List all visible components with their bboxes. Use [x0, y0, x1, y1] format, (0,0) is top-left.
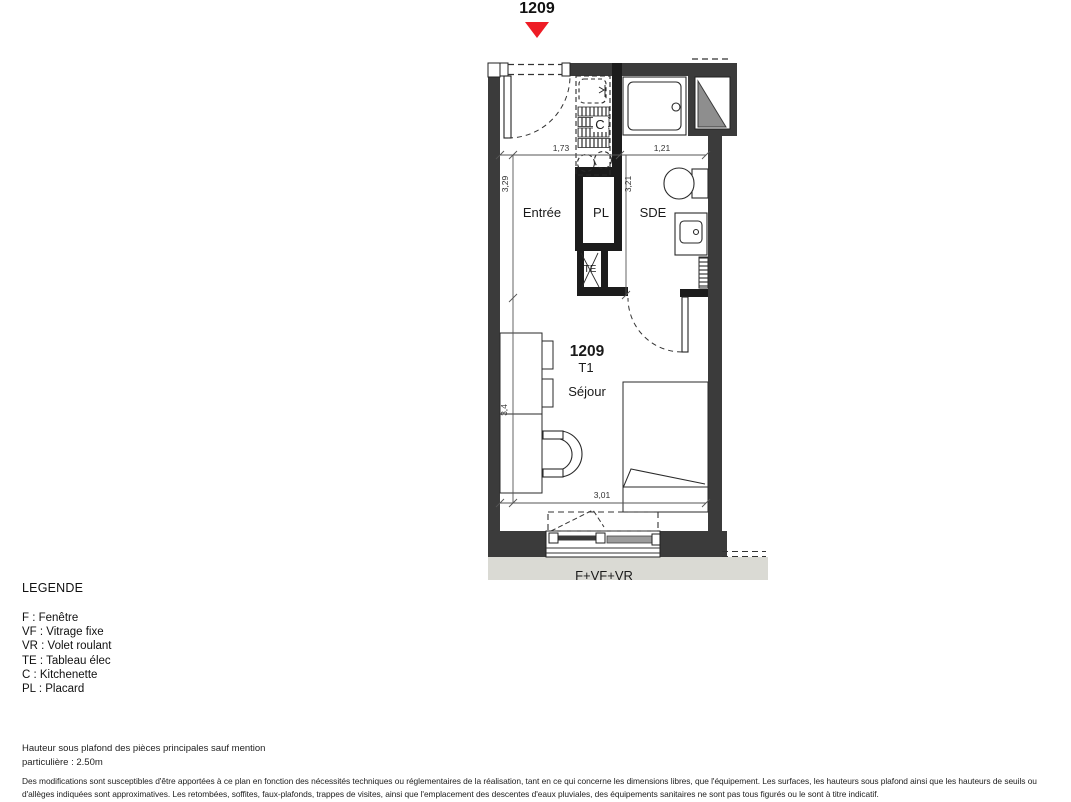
dim-width-entree: 1,73	[553, 143, 570, 153]
room-label-sde: SDE	[640, 205, 667, 220]
te-label: TE	[584, 264, 597, 275]
hob-burner-icon	[595, 152, 612, 169]
legend-item-fenetre: F : Fenêtre	[22, 611, 112, 625]
ceiling-height-note: Hauteur sous plafond des pièces principa…	[22, 742, 265, 769]
floor-plan-drawing: C TE	[0, 0, 1071, 800]
shower-tray	[623, 77, 686, 135]
legend-item-tableau-elec: TE : Tableau élec	[22, 654, 112, 668]
dim-width-sde: 1,21	[654, 143, 671, 153]
kitchenette-label: C	[595, 117, 604, 132]
sejour-door	[628, 297, 688, 352]
legend-title: LEGENDE	[22, 581, 112, 595]
dim-depth-entree: 3,29	[500, 175, 510, 192]
dim-depth-sejour: 3,4	[499, 404, 509, 416]
roller-shutter-box	[548, 512, 658, 531]
washbasin-icon	[675, 213, 707, 255]
legend-item-volet-roulant: VR : Volet roulant	[22, 639, 112, 653]
floor-plan-page: { "header": { "unit_number": "1209" }, "…	[0, 0, 1071, 800]
radiator-icon	[699, 257, 708, 288]
room-label-entree: Entrée	[523, 205, 561, 220]
wardrobe	[500, 333, 553, 414]
entry-opening	[488, 63, 570, 77]
ceiling-note-line2: particulière : 2.50m	[22, 756, 265, 770]
window-swing-symbol	[551, 510, 604, 531]
bed-icon	[623, 382, 708, 512]
disclaimer: Des modifications sont susceptibles d'êt…	[22, 775, 1037, 802]
chair-icon	[543, 431, 582, 477]
legend: LEGENDE F : Fenêtre VF : Vitrage fixe VR…	[22, 581, 112, 696]
window-assembly	[546, 510, 766, 557]
ceiling-note-line1: Hauteur sous plafond des pièces principa…	[22, 742, 265, 756]
disclaimer-line1: Des modifications sont susceptibles d'êt…	[22, 775, 1037, 788]
entry-door	[504, 76, 570, 138]
unit-type-label: T1	[578, 360, 593, 375]
legend-item-placard: PL : Placard	[22, 682, 112, 696]
fixed-glazing-pane	[607, 536, 653, 543]
room-label-placard: PL	[593, 205, 609, 220]
window-label: F+VF+VR	[575, 568, 633, 583]
unit-number-label: 1209	[570, 343, 605, 360]
duct-shaft	[688, 59, 737, 136]
dim-depth-sde: 3,21	[623, 175, 633, 192]
legend-item-vitrage-fixe: VF : Vitrage fixe	[22, 625, 112, 639]
toilet-icon	[664, 168, 708, 199]
desk	[500, 414, 542, 493]
legend-item-kitchenette: C : Kitchenette	[22, 668, 112, 682]
room-label-sejour: Séjour	[568, 384, 606, 399]
dim-width-sejour: 3,01	[594, 490, 611, 500]
